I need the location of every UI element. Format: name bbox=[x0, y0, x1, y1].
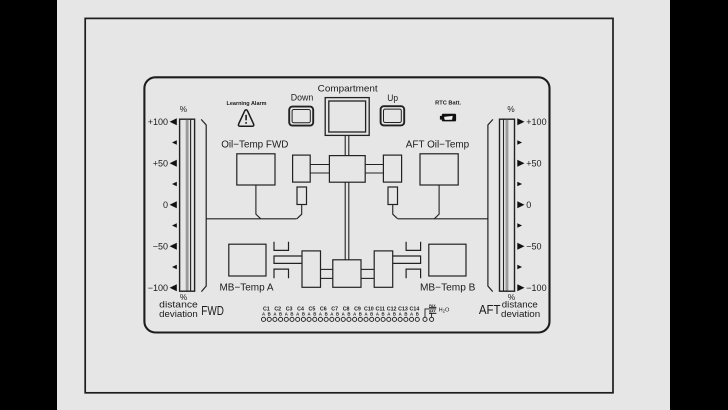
svg-text:0: 0 bbox=[526, 200, 531, 210]
svg-text:B: B bbox=[359, 311, 362, 316]
svg-text:Compartment: Compartment bbox=[318, 84, 378, 95]
svg-text:A: A bbox=[262, 311, 265, 316]
svg-text:0: 0 bbox=[163, 200, 168, 210]
svg-text:−50: −50 bbox=[526, 242, 541, 252]
svg-text:MB−Temp A: MB−Temp A bbox=[220, 283, 274, 294]
svg-text:A: A bbox=[410, 311, 413, 316]
svg-text:%: % bbox=[507, 105, 514, 114]
svg-text:deviation: deviation bbox=[501, 309, 540, 319]
svg-text:A: A bbox=[342, 311, 345, 316]
svg-text:A: A bbox=[319, 311, 322, 316]
svg-text:−100: −100 bbox=[148, 283, 168, 293]
svg-text:H2O: H2O bbox=[439, 307, 450, 313]
svg-text:B: B bbox=[347, 311, 350, 316]
svg-text:BAX: BAX bbox=[429, 310, 436, 314]
svg-text:A: A bbox=[285, 311, 288, 316]
svg-text:A: A bbox=[308, 311, 311, 316]
svg-text:A: A bbox=[399, 311, 402, 316]
svg-text:%: % bbox=[180, 105, 187, 114]
svg-text:A: A bbox=[387, 311, 390, 316]
svg-text:B: B bbox=[416, 311, 419, 316]
svg-text:B: B bbox=[302, 311, 305, 316]
svg-text:+100: +100 bbox=[526, 117, 546, 127]
svg-text:Down: Down bbox=[291, 93, 314, 104]
svg-text:B: B bbox=[370, 311, 373, 316]
svg-text:B: B bbox=[404, 311, 407, 316]
svg-text:B: B bbox=[268, 311, 271, 316]
svg-text:B: B bbox=[290, 311, 293, 316]
svg-text:AFT: AFT bbox=[479, 302, 501, 317]
svg-text:Learning Alarm: Learning Alarm bbox=[227, 101, 267, 107]
svg-text:FWD: FWD bbox=[201, 303, 224, 318]
svg-text:−50: −50 bbox=[153, 242, 168, 252]
svg-text:+50: +50 bbox=[153, 159, 168, 169]
svg-text:deviation: deviation bbox=[159, 309, 198, 319]
svg-text:RTC Batt.: RTC Batt. bbox=[435, 100, 461, 106]
svg-text:A: A bbox=[376, 311, 379, 316]
svg-text:A: A bbox=[364, 311, 367, 316]
svg-text:Up: Up bbox=[387, 93, 398, 104]
svg-text:MB−Temp B: MB−Temp B bbox=[420, 283, 476, 294]
svg-text:+50: +50 bbox=[526, 159, 541, 169]
svg-text:Oil−Temp FWD: Oil−Temp FWD bbox=[221, 140, 288, 151]
svg-text:B: B bbox=[336, 311, 339, 316]
svg-text:B: B bbox=[279, 311, 282, 316]
svg-text:A: A bbox=[353, 311, 356, 316]
svg-text:B: B bbox=[382, 311, 385, 316]
svg-text:PAX: PAX bbox=[429, 304, 436, 308]
svg-text:B: B bbox=[313, 311, 316, 316]
svg-text:A: A bbox=[330, 311, 333, 316]
svg-text:A: A bbox=[296, 311, 299, 316]
svg-text:A: A bbox=[273, 311, 276, 316]
svg-text:−100: −100 bbox=[526, 283, 546, 293]
svg-text:+100: +100 bbox=[148, 117, 168, 127]
svg-text:B: B bbox=[325, 311, 328, 316]
svg-text:AFT Oil−Temp: AFT Oil−Temp bbox=[406, 140, 470, 151]
svg-text:B: B bbox=[393, 311, 396, 316]
